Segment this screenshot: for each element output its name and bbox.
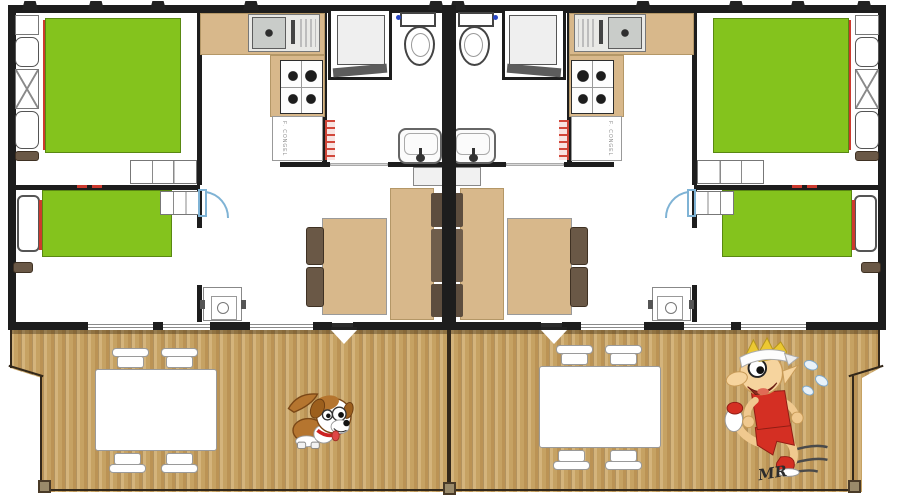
- water-heater-knob: [689, 300, 694, 309]
- window: [684, 324, 731, 328]
- water-heater-dial: [217, 302, 229, 314]
- shower-door: [507, 64, 562, 78]
- dining-table: [322, 218, 387, 315]
- patio-chair: [553, 450, 590, 470]
- single-bed: [722, 190, 852, 257]
- wall-bottom-seg: [644, 322, 684, 330]
- washbasin: [452, 128, 496, 164]
- sink-drainer: [300, 19, 316, 47]
- fridge-freezer: F. CONGEL: [571, 116, 622, 161]
- water-heater-knob: [200, 300, 205, 309]
- sink-faucet: [291, 20, 295, 44]
- wall-anchor: [856, 1, 872, 10]
- wall-bottom-seg: [448, 322, 541, 330]
- chair-backrest: [109, 464, 146, 473]
- double-bed: [45, 18, 181, 153]
- dining-chair: [306, 227, 324, 265]
- towel-rail: [559, 120, 569, 160]
- sink-faucet: [599, 20, 603, 44]
- dining-chair: [306, 267, 324, 307]
- door-swing-icon: [197, 188, 231, 222]
- wall-bottom-seg: [153, 322, 163, 330]
- wardrobe-base: [855, 151, 879, 161]
- wall-outer-side: [878, 5, 886, 330]
- chair-seat: [561, 353, 588, 365]
- dining-chair: [570, 227, 588, 265]
- wardrobe-hanging-space: [855, 69, 879, 109]
- deck-shadow: [10, 330, 880, 334]
- chair-seat: [558, 450, 585, 462]
- chair-seat: [166, 356, 193, 368]
- bedside-shelves: [694, 191, 734, 215]
- pillow: [17, 195, 40, 252]
- shower-tray: [509, 15, 557, 65]
- bedside-shelves: [160, 191, 200, 215]
- wardrobe-shelf: [15, 37, 39, 67]
- wall-anchor: [243, 1, 259, 10]
- window: [741, 324, 806, 328]
- wardrobe-base: [15, 151, 39, 161]
- fridge-label: F. CONGEL: [281, 121, 287, 156]
- closet: [130, 160, 197, 184]
- deck-post: [443, 482, 456, 495]
- window: [581, 324, 644, 328]
- patio-table: [95, 369, 217, 451]
- deck-divider: [447, 330, 451, 488]
- shower-cabin: [328, 8, 392, 80]
- deck-post: [848, 480, 861, 493]
- sink-basin: [608, 17, 642, 49]
- patio-chair: [161, 348, 198, 368]
- wall-anchor: [22, 1, 38, 10]
- central-party-wall: [442, 5, 456, 330]
- bedside-bench: [13, 262, 33, 273]
- bed-headboard-trim: [852, 200, 855, 250]
- shower-cabin: [502, 8, 566, 80]
- chair-seat: [610, 450, 637, 462]
- bed-fixing-mark: [792, 185, 802, 188]
- flush-button: [396, 15, 401, 20]
- toilet-bowl-inner: [411, 33, 430, 57]
- sink-basin: [252, 17, 286, 49]
- wardrobe-shelf: [855, 15, 879, 35]
- wardrobe-hanging-space: [15, 69, 39, 109]
- wardrobe-shelf: [855, 111, 879, 149]
- wall-bottom-seg: [353, 322, 446, 330]
- unit-right: F. CONGEL: [448, 5, 886, 330]
- deck-edge: [852, 376, 854, 490]
- fridge-label: F. CONGEL: [607, 121, 613, 156]
- window: [250, 324, 313, 328]
- patio-chair: [109, 453, 146, 473]
- dining-table: [507, 218, 572, 315]
- wall-anchor: [728, 1, 744, 10]
- sofa-base: [390, 188, 434, 320]
- wardrobe-shelf: [15, 15, 39, 35]
- bed-fixing-mark: [92, 185, 102, 188]
- patio-chair: [605, 450, 642, 470]
- deck-post: [38, 480, 51, 493]
- chair-backrest: [553, 461, 590, 470]
- patio-set-left: [95, 348, 217, 473]
- bathroom-door-leaf: [506, 163, 564, 166]
- wall-bathroom-bottom-a: [564, 162, 614, 167]
- pillow: [854, 195, 877, 252]
- wall-anchor: [88, 1, 104, 10]
- patio-chair: [556, 345, 593, 365]
- bed-fixing-mark: [807, 185, 817, 188]
- washbasin: [398, 128, 442, 164]
- patio-chair: [112, 348, 149, 368]
- window: [88, 324, 153, 328]
- toilet-cistern: [458, 12, 494, 27]
- unit-left: F. CONGEL: [8, 5, 446, 330]
- toilet-bowl: [459, 26, 490, 66]
- wall-anchor: [635, 1, 651, 10]
- wall-bottom-seg: [210, 322, 250, 330]
- deck-edge: [878, 330, 880, 368]
- wall-anchor: [790, 1, 806, 10]
- wardrobe-shelf: [855, 37, 879, 67]
- wall-anchor: [150, 1, 166, 10]
- sink-drainer: [578, 19, 594, 47]
- chair-seat: [610, 353, 637, 365]
- gas-hob: [571, 60, 614, 114]
- patio-chair: [161, 453, 198, 473]
- bathroom-door-leaf: [330, 163, 388, 166]
- water-heater: [652, 287, 691, 321]
- flush-button: [493, 15, 498, 20]
- chair-backrest: [161, 464, 198, 473]
- toilet-cistern: [400, 12, 436, 27]
- chair-seat: [117, 356, 144, 368]
- door-threshold: [331, 327, 357, 330]
- chair-seat: [166, 453, 193, 465]
- deck-edge: [10, 330, 12, 368]
- water-heater-dial: [665, 302, 677, 314]
- window: [163, 324, 210, 328]
- wall-bottom-seg: [731, 322, 741, 330]
- water-heater: [203, 287, 242, 321]
- gas-hob: [280, 60, 323, 114]
- towel-rail: [325, 120, 335, 160]
- floor-plan: MR F. CONGEL: [0, 0, 900, 500]
- double-bed: [713, 18, 849, 153]
- chair-backrest: [605, 461, 642, 470]
- chair-seat: [114, 453, 141, 465]
- wall-bathroom-bottom-a: [280, 162, 330, 167]
- single-bed: [42, 190, 172, 257]
- wall-bottom-seg: [8, 322, 88, 330]
- door-threshold: [541, 327, 567, 330]
- closet: [697, 160, 764, 184]
- patio-table: [539, 366, 661, 448]
- door-swing-icon: [663, 188, 697, 222]
- water-heater-knob: [648, 300, 653, 309]
- toilet-bowl: [404, 26, 435, 66]
- dining-chair: [570, 267, 588, 307]
- wardrobe-shelf: [15, 111, 39, 149]
- fridge-freezer: F. CONGEL: [272, 116, 323, 161]
- shower-door: [333, 64, 388, 78]
- washbasin-tap-knob: [416, 154, 425, 162]
- wall-bottom-seg: [313, 322, 332, 330]
- wall-bottom-seg: [806, 322, 886, 330]
- patio-chair: [605, 345, 642, 365]
- toilet-bowl-inner: [464, 33, 483, 57]
- patio-set-right: [539, 345, 661, 470]
- bed-fixing-mark: [77, 185, 87, 188]
- deck-edge: [40, 376, 42, 490]
- sofa-base: [460, 188, 504, 320]
- dog-cartoon: [281, 385, 363, 453]
- bedside-bench: [861, 262, 881, 273]
- shower-tray: [337, 15, 385, 65]
- water-heater-knob: [241, 300, 246, 309]
- washbasin-tap-knob: [469, 154, 478, 162]
